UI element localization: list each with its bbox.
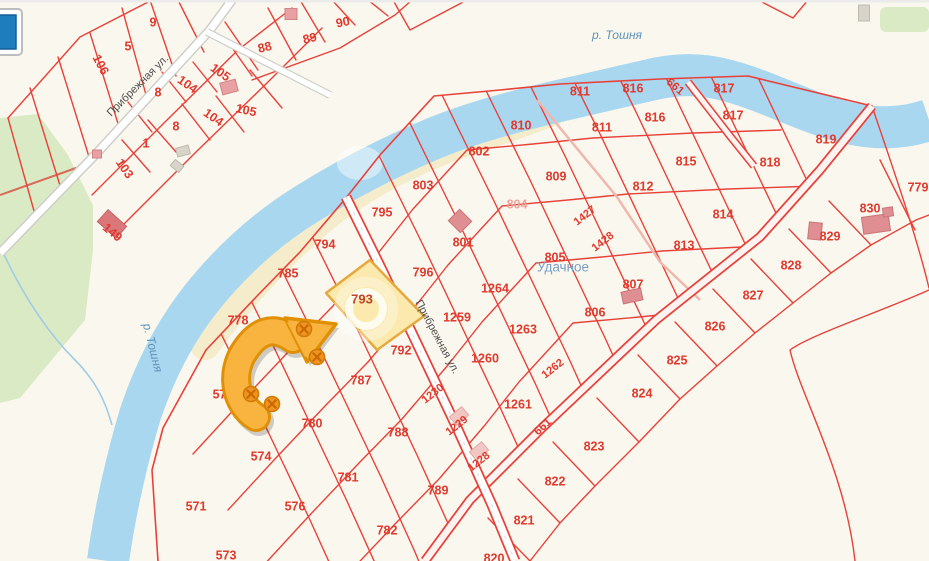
parcel-label: 813	[674, 238, 695, 252]
parcel-label: 811	[592, 120, 612, 134]
parcel-label: 825	[667, 353, 688, 367]
parcel-label: 780	[302, 416, 323, 430]
building	[285, 9, 297, 20]
parcel-label: 807	[623, 277, 644, 291]
parcel-label: 803	[413, 178, 434, 192]
parcel-label: 816	[623, 81, 644, 95]
parcel-label: 795	[372, 205, 393, 219]
parcel-label: 1263	[509, 322, 537, 336]
parcel-label: 821	[514, 513, 535, 527]
building	[93, 150, 102, 158]
parcel-label: 826	[705, 319, 726, 333]
parcel-label: 819	[816, 132, 837, 146]
map-watermark-blob	[337, 146, 383, 180]
parcel-label: 820	[484, 551, 505, 561]
parcel-label: 576	[285, 499, 306, 513]
parcel-label: 778	[228, 313, 249, 327]
parcel-label: 816	[645, 110, 666, 124]
parcel-label: 1261	[504, 397, 532, 411]
parcel-label: 792	[391, 343, 412, 357]
parcel-label: 785	[278, 266, 299, 280]
parcel-label: 574	[251, 449, 272, 463]
cadastral-map-screenshot: 9510681041058889901051048110314977878579…	[0, 0, 929, 561]
parcel-label: 1	[143, 136, 150, 150]
parcel-label: 801	[453, 235, 474, 249]
parcel-label: 811	[570, 84, 590, 98]
parcel-label: 802	[469, 144, 490, 158]
parcel-label: 782	[377, 523, 398, 537]
river-label: р. Тошня	[591, 28, 643, 42]
parcel-label: 829	[820, 229, 841, 243]
parcel-label: 812	[633, 179, 654, 193]
map-canvas[interactable]: 9510681041058889901051048110314977878579…	[0, 0, 929, 561]
parcel-label: 806	[585, 305, 606, 319]
parcel-label: 817	[723, 108, 744, 122]
building	[882, 207, 893, 217]
parcel-label: 794	[315, 237, 336, 251]
parcel-label: 818	[760, 155, 781, 169]
parcel-label-muted: 804	[507, 197, 528, 211]
parcel-label: 9	[150, 15, 157, 29]
parcel-label: 779	[908, 180, 929, 194]
building	[859, 5, 870, 21]
parcel-label: 796	[413, 265, 434, 279]
highlight-parcel-label: 793	[351, 291, 373, 306]
parcel-label: 809	[546, 169, 567, 183]
parcel-label: 8	[155, 85, 162, 99]
parcel-label: 822	[545, 474, 566, 488]
parcel-label: 815	[676, 154, 697, 168]
parcel-label: 827	[743, 288, 764, 302]
parcel-label: 823	[584, 439, 605, 453]
parcel-label: 5	[125, 39, 132, 53]
parcel-label: 830	[860, 201, 881, 215]
parcel-label: 90	[335, 14, 352, 31]
page-top-border	[0, 0, 929, 3]
parcel-label: 828	[781, 258, 802, 272]
parcel-label: 8	[173, 119, 180, 133]
parcel-label: 810	[511, 118, 532, 132]
parcel-label: 787	[351, 373, 372, 387]
parcel-label: 789	[428, 483, 449, 497]
parcel-label: 1260	[471, 351, 499, 365]
parcel-label: 571	[186, 499, 207, 513]
parcel-label: 781	[338, 470, 359, 484]
parcel-label: 814	[713, 207, 734, 221]
place-label: Удачное	[537, 260, 589, 275]
parcel-label: 788	[388, 425, 409, 439]
zoom-control-fragment[interactable]	[0, 9, 22, 55]
parcel-label: 824	[632, 386, 653, 400]
parcel-label: 1259	[443, 310, 471, 324]
parcel-label: 1264	[481, 281, 509, 295]
parcel-label: 573	[216, 548, 237, 561]
parcel-label: 817	[714, 81, 735, 95]
